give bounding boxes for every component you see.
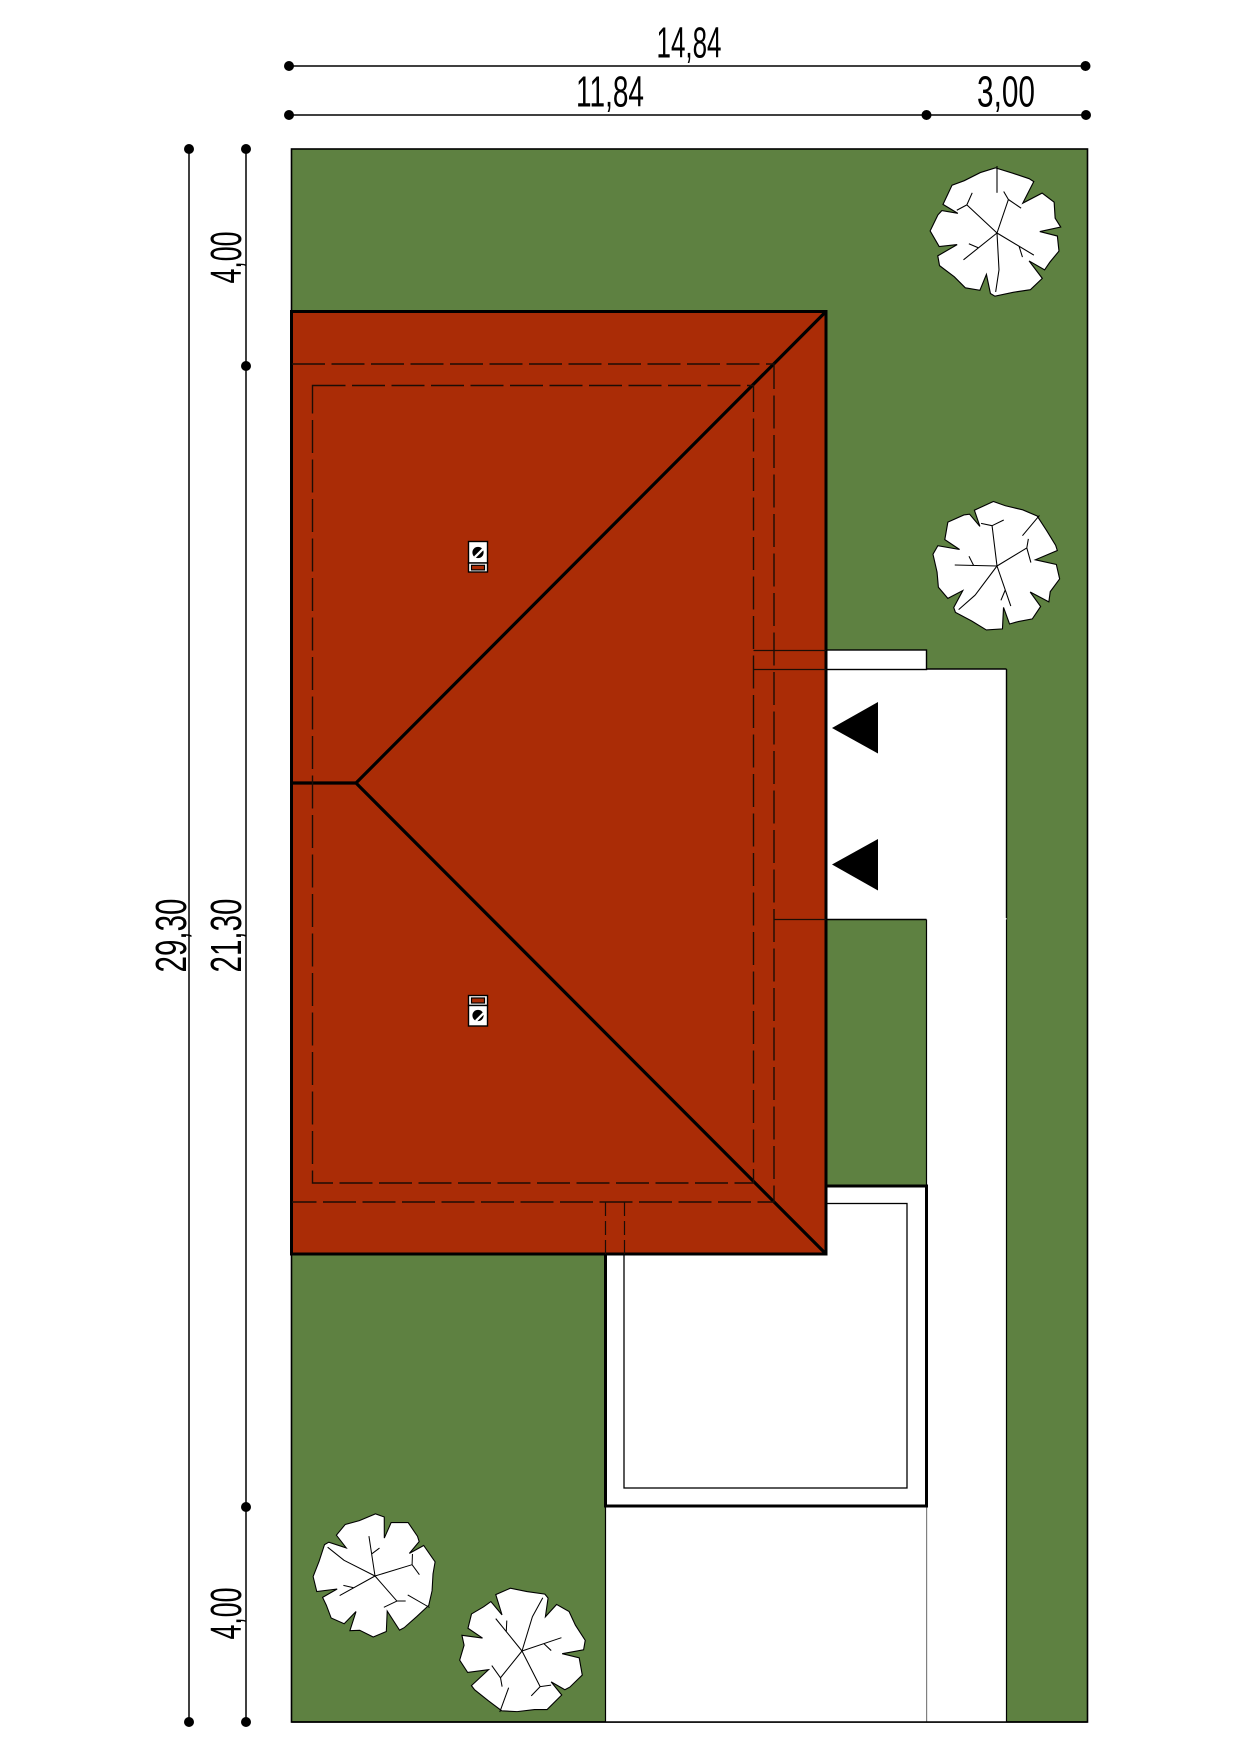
svg-text:4,00: 4,00 (202, 1588, 251, 1640)
svg-text:29,30: 29,30 (147, 899, 196, 973)
svg-text:11,84: 11,84 (576, 68, 644, 117)
svg-text:3,00: 3,00 (977, 68, 1035, 117)
svg-text:4,00: 4,00 (202, 232, 251, 284)
svg-text:14,84: 14,84 (657, 19, 722, 68)
svg-text:21,30: 21,30 (202, 899, 251, 973)
